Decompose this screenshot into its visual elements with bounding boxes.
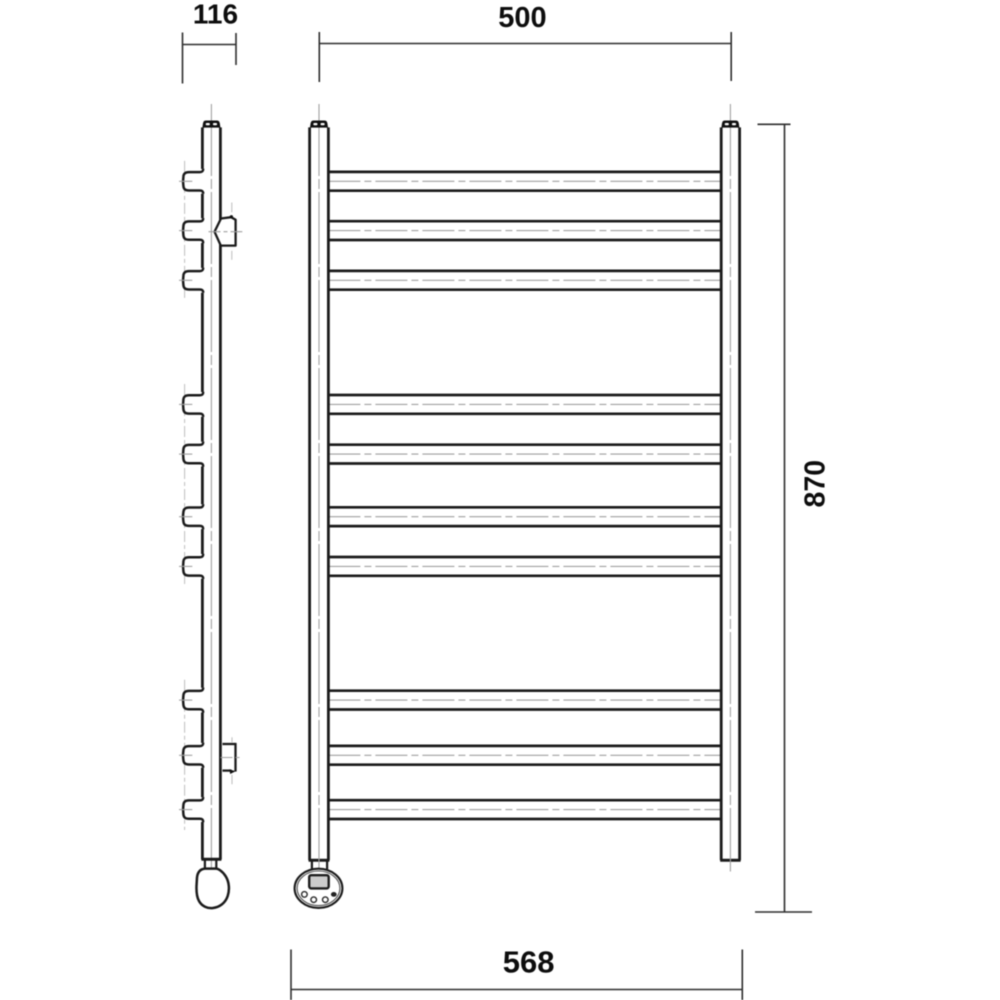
svg-text:116: 116	[193, 0, 238, 29]
svg-text:500: 500	[498, 2, 546, 34]
svg-text:870: 870	[800, 460, 832, 508]
svg-text:568: 568	[503, 944, 555, 979]
